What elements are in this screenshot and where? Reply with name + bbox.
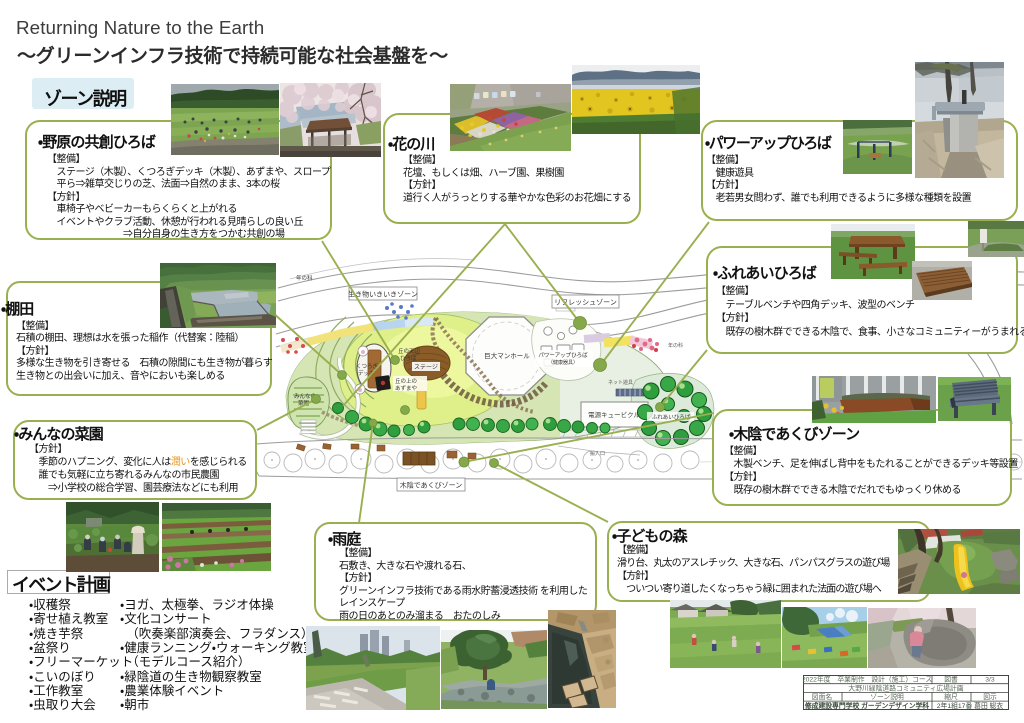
svg-text:図示: 図示 (983, 693, 997, 701)
svg-text:ステージ: ステージ (414, 364, 438, 371)
svg-text:ふれあいひろば: ふれあいひろば (652, 413, 691, 421)
svg-text:修成建設専門学校 ガーデンデザイン学科: 修成建設専門学校 ガーデンデザイン学科 (804, 701, 929, 710)
svg-text:2022年度 卒業制作 設計（施工）コース: 2022年度 卒業制作 設計（施工）コース (803, 675, 932, 684)
svg-text:巨大マンホール: 巨大マンホール (484, 351, 530, 360)
svg-text:大野川緑陰道路コミュニティ広場計画: 大野川緑陰道路コミュニティ広場計画 (848, 683, 963, 692)
svg-text:年の科: 年の科 (668, 342, 683, 349)
svg-text:図書: 図書 (944, 675, 958, 684)
svg-text:電源キュービクル: 電源キュービクル (588, 410, 640, 419)
svg-text:縮尺: 縮尺 (944, 692, 958, 701)
svg-text:3/3: 3/3 (985, 677, 995, 684)
svg-text:木陰であくびゾーン: 木陰であくびゾーン (400, 481, 463, 490)
svg-text:丘の上の: 丘の上の (395, 377, 417, 385)
svg-text:パワーアップひろば: パワーアップひろば (538, 351, 588, 359)
svg-text:丘の天辺: 丘の天辺 (398, 347, 421, 355)
svg-text:（健康器具）: （健康器具） (548, 359, 578, 366)
svg-text:生き物いきいきゾーン: 生き物いきいきゾーン (348, 290, 418, 299)
svg-text:図面名: 図面名 (812, 692, 833, 701)
svg-text:あずまや: あずまや (395, 384, 417, 392)
svg-text:年の科: 年の科 (296, 274, 313, 282)
svg-text:2年1組17番 葛田 総衣: 2年1組17番 葛田 総衣 (937, 701, 1004, 710)
svg-text:ひろば: ひろば (400, 354, 417, 362)
svg-text:ネット遊具: ネット遊具 (608, 379, 633, 386)
svg-text:ゾーン説明: ゾーン説明 (870, 692, 904, 701)
